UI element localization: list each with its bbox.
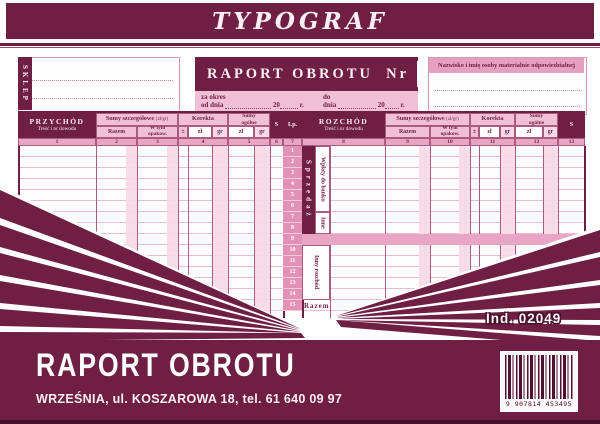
sklep-strip: SKLEP bbox=[18, 57, 32, 110]
col-zl: zł bbox=[479, 126, 500, 138]
col-number: 9 bbox=[385, 138, 430, 146]
col-number: 5 bbox=[228, 138, 270, 146]
col-razem: Razem bbox=[96, 126, 137, 138]
write-line bbox=[25, 98, 173, 99]
razem-label: Razem bbox=[304, 302, 330, 310]
col-rozchod-header: ROZCHÓDTreść i nr dowodu bbox=[302, 113, 385, 138]
col-number: 2 bbox=[96, 138, 137, 146]
col-zl: zł bbox=[515, 126, 543, 138]
sklep-label: SKLEP bbox=[21, 65, 29, 103]
col-w-tym-opakow: W tymopakow. bbox=[137, 126, 178, 138]
col-s-header: S bbox=[270, 113, 283, 138]
write-line bbox=[25, 80, 173, 81]
row-number: 1 bbox=[283, 146, 302, 157]
col-number: 12 bbox=[515, 138, 558, 146]
col-line bbox=[137, 146, 138, 318]
gr-stripe bbox=[254, 146, 270, 318]
col-line bbox=[254, 146, 255, 318]
row-number: 10 bbox=[283, 245, 302, 256]
group-sumy-szczegolowe: Sumy szczegółowe (zł/gr) bbox=[96, 113, 178, 126]
responsible-person-header: Nazwisko i imię osoby materialnie odpowi… bbox=[429, 58, 584, 73]
gr-stripe bbox=[419, 146, 430, 318]
col-line bbox=[430, 146, 431, 318]
section-wplaty-do-banku: Wpłaty do banku bbox=[315, 146, 330, 212]
group-korekta: Korekta bbox=[178, 113, 228, 126]
col-lp-header: Lp. bbox=[283, 113, 302, 138]
publisher-address: WRZEŚNIA, ul. KOSZAROWA 18, tel. 61 640 … bbox=[36, 392, 342, 406]
col-number: 6 bbox=[270, 138, 283, 146]
gr-stripe bbox=[212, 146, 228, 318]
col-line bbox=[543, 146, 544, 318]
col-razem: Razem bbox=[385, 126, 430, 138]
col-line bbox=[558, 146, 559, 318]
col-line bbox=[500, 146, 501, 318]
footer-edge-line bbox=[0, 420, 600, 424]
row-number: 13 bbox=[283, 278, 302, 289]
col-line bbox=[178, 146, 179, 318]
col-number: 8 bbox=[302, 138, 385, 146]
col-s-header: S bbox=[558, 113, 585, 138]
inne-label: Inne bbox=[320, 217, 326, 229]
col-line bbox=[584, 146, 586, 318]
col-gr: gr bbox=[500, 126, 515, 138]
shop-name-box bbox=[18, 57, 180, 112]
row-number: 3 bbox=[283, 168, 302, 179]
group-korekta: Korekta bbox=[470, 113, 515, 126]
gr-stripe bbox=[126, 146, 137, 318]
row-number: 5 bbox=[283, 190, 302, 201]
col-line bbox=[96, 146, 97, 318]
write-line bbox=[435, 106, 580, 107]
barcode-number: 9 907814 453495 bbox=[505, 400, 573, 408]
row-number: 9 bbox=[283, 234, 302, 245]
brand-banner: TYPOGRAF bbox=[6, 3, 594, 39]
product-title: RAPORT OBROTU bbox=[36, 348, 296, 385]
col-line bbox=[479, 146, 480, 318]
row-number: 7 bbox=[283, 212, 302, 223]
col-number: 7 bbox=[283, 138, 302, 146]
col-number: 1 bbox=[18, 138, 96, 146]
col-number: 10 bbox=[430, 138, 470, 146]
gr-stripe bbox=[167, 146, 178, 318]
col-line bbox=[385, 146, 386, 318]
col-line bbox=[330, 146, 331, 318]
row-number: 8 bbox=[283, 223, 302, 234]
form-title: RAPORT OBROTU Nr bbox=[207, 66, 409, 83]
section-inne: Inne bbox=[315, 212, 330, 234]
col-zl: zł bbox=[228, 126, 254, 138]
col-line bbox=[212, 146, 213, 318]
col-number: 3 bbox=[137, 138, 178, 146]
row-number: 14 bbox=[283, 289, 302, 300]
barcode-bars bbox=[505, 355, 573, 399]
row-number: 2 bbox=[283, 157, 302, 168]
write-line bbox=[435, 90, 580, 91]
row-number: 4 bbox=[283, 179, 302, 190]
group-sumy-ogolne: Sumyogólne bbox=[515, 113, 558, 126]
report-number-box bbox=[417, 61, 418, 87]
section-razem: Razem bbox=[304, 300, 364, 311]
sprzedaz-label: Sprzedaż bbox=[305, 160, 313, 220]
date-dots bbox=[225, 101, 271, 109]
group-sumy-szczegolowe: Sumy szczegółowe (zł/gr) bbox=[385, 113, 470, 126]
row-number: 15 bbox=[283, 300, 302, 311]
col-gr: gr bbox=[543, 126, 558, 138]
col-plusminus: ± bbox=[470, 126, 479, 138]
col-przychod-header: PRZYCHÓDTreść i nr dowodu bbox=[18, 113, 96, 138]
period-from-label: za okres od dnia 20 r. bbox=[201, 93, 304, 109]
row-number: 6 bbox=[283, 201, 302, 212]
col-line bbox=[18, 146, 20, 318]
banner-rule-thick bbox=[0, 43, 600, 46]
col-number: 4 bbox=[178, 138, 228, 146]
col-zl: zł bbox=[188, 126, 212, 138]
group-sumy-ogolne: Sumyogólne bbox=[228, 113, 270, 126]
highlight-row bbox=[302, 234, 585, 245]
form-pad-photo: TYPOGRAF SKLEP RAPORT OBROTU Nr za okres… bbox=[0, 0, 600, 424]
gr-stripe bbox=[500, 146, 515, 318]
col-plusminus: ± bbox=[178, 126, 188, 138]
col-gr: gr bbox=[212, 126, 228, 138]
col-gr: gr bbox=[254, 126, 270, 138]
col-line bbox=[470, 146, 471, 318]
period-strip: za okres od dnia 20 r. do dnia 20 r. bbox=[195, 91, 418, 113]
col-w-tym-opakow: W tymopakow. bbox=[430, 126, 470, 138]
index-number: Ind. 02049 bbox=[486, 311, 561, 326]
col-number: 11 bbox=[470, 138, 515, 146]
col-line bbox=[228, 146, 229, 318]
row-number: 12 bbox=[283, 267, 302, 278]
gr-stripe bbox=[543, 146, 558, 318]
form-title-bar: RAPORT OBROTU Nr bbox=[195, 57, 418, 91]
col-line bbox=[270, 146, 271, 318]
wplaty-label: Wpłaty do banku bbox=[320, 157, 326, 202]
section-sprzedaz: Sprzedaż bbox=[302, 146, 315, 234]
section-inny-rozchod: Inny rozchód bbox=[302, 245, 330, 300]
gr-stripe bbox=[459, 146, 470, 318]
lp-row-numbers: 123456789101112131415 bbox=[283, 146, 302, 311]
responsible-person-label: Nazwisko i imię osoby materialnie odpowi… bbox=[438, 62, 575, 69]
brand-name: TYPOGRAF bbox=[212, 8, 388, 35]
inny-rozchod-label: Inny rozchód bbox=[313, 255, 319, 289]
col-line bbox=[188, 146, 189, 318]
date-dots bbox=[338, 101, 376, 109]
row-number: 11 bbox=[283, 256, 302, 267]
col-line bbox=[515, 146, 516, 318]
col-number: 13 bbox=[558, 138, 585, 146]
period-to-label: do dnia 20 r. bbox=[323, 93, 405, 109]
barcode: 9 907814 453495 bbox=[500, 351, 578, 412]
banner-rule-thin bbox=[0, 47, 600, 48]
